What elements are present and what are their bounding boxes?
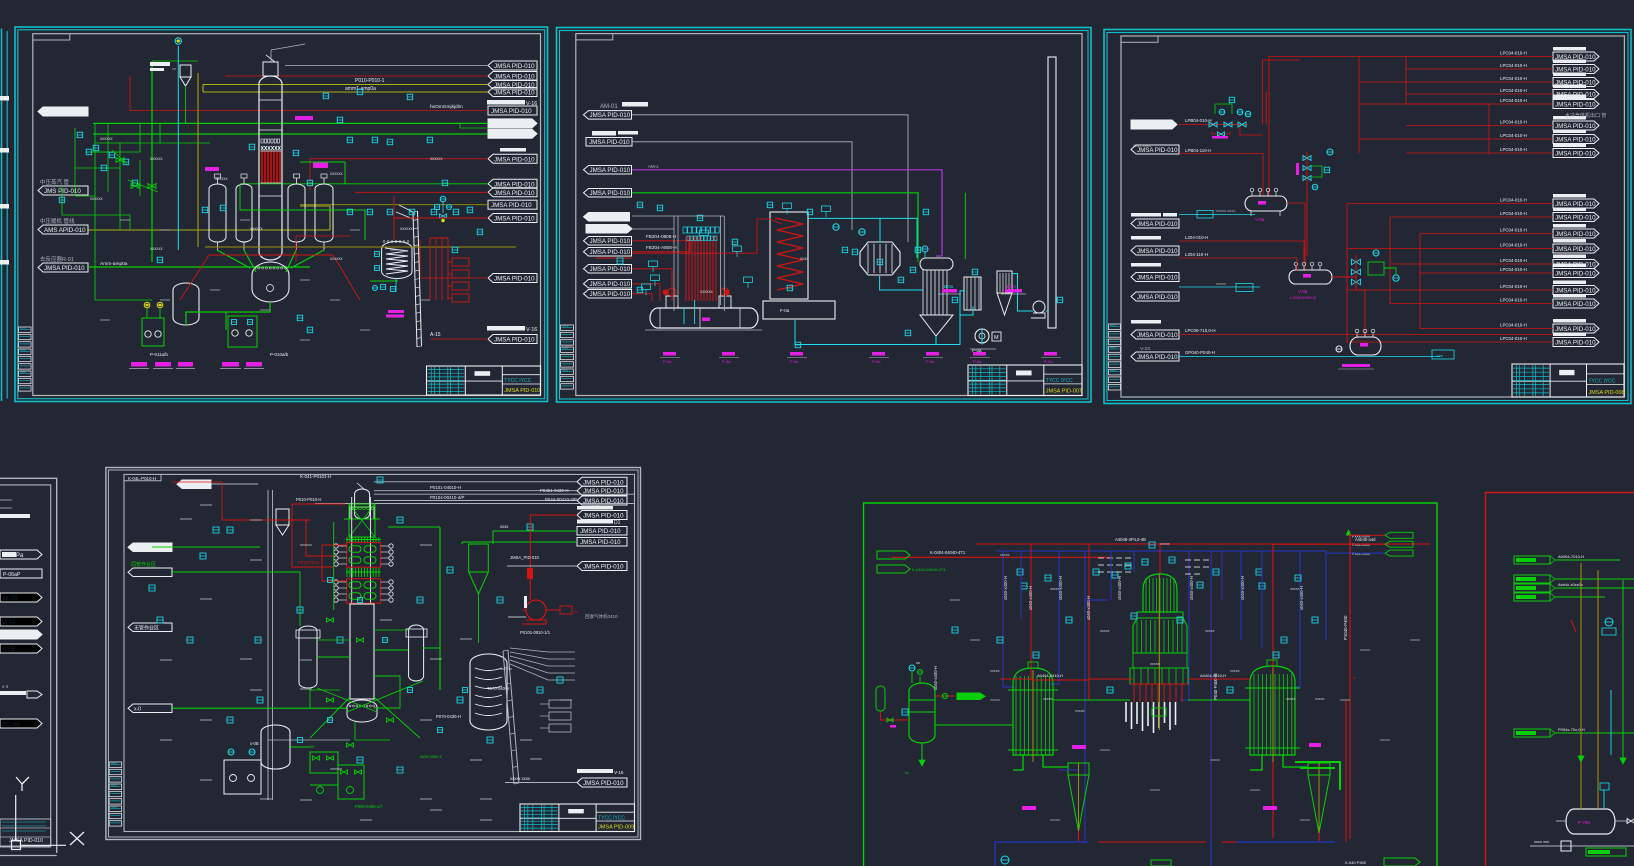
svg-text:xxxxxx: xxxxxx <box>500 666 512 671</box>
svg-text:LPB04-010-H: LPB04-010-H <box>1185 118 1212 123</box>
svg-text:中压蒸汽 管: 中压蒸汽 管 <box>40 178 70 186</box>
svg-text:P044-00410-4/P: P044-00410-4/P <box>545 497 577 502</box>
svg-text:x-4: x-4 <box>2 684 9 689</box>
svg-text:LPC04-010-H: LPC04-010-H <box>1500 63 1527 68</box>
svg-text:JMSA PID-010: JMSA PID-010 <box>1555 288 1596 295</box>
svg-text:JMSA PID-010: JMSA PID-010 <box>1555 102 1596 109</box>
svg-text:x040-x400-H: x040-x400-H <box>1189 576 1194 600</box>
svg-text:xxxxx: xxxxx <box>1230 669 1240 673</box>
svg-text:P070-0430-H: P070-0430-H <box>436 714 461 719</box>
svg-text:P090-0408-1/7: P090-0408-1/7 <box>355 804 383 809</box>
svg-text:xxxxxx: xxxxxx <box>90 196 103 201</box>
svg-text:JMSA PID-010: JMSA PID-010 <box>494 276 535 283</box>
svg-text:JMSA PID-010: JMSA PID-010 <box>1137 221 1178 228</box>
svg-text:V-16: V-16 <box>590 504 600 509</box>
svg-text:JMSA PID-007: JMSA PID-007 <box>1046 389 1082 395</box>
svg-text:BC-0B: BC-0B <box>2 721 20 728</box>
svg-text:JMSA PID-010: JMSA PID-010 <box>580 539 621 546</box>
svg-text:JMSA PID-010: JMSA PID-010 <box>590 238 631 245</box>
svg-text:x040-x400-H: x040-x400-H <box>1003 576 1008 600</box>
svg-text:JMSA PID-010: JMSA PID-010 <box>590 167 631 174</box>
svg-text:LPC04-010-H: LPC04-010-H <box>1500 88 1527 93</box>
svg-text:xxxxx: xxxxx <box>1205 629 1215 633</box>
svg-text:x040-x400-H: x040-x400-H <box>1299 586 1304 610</box>
svg-text:JMSA PID-010: JMSA PID-010 <box>1555 201 1596 208</box>
svg-text:xxxxxx: xxxxxx <box>480 796 492 801</box>
svg-text:P010-P010: P010-P010 <box>298 560 320 565</box>
svg-text:xxxxxx: xxxxxx <box>530 756 542 761</box>
svg-text:xxxxxx: xxxxxx <box>330 256 343 261</box>
svg-text:JMSA PID-010: JMSA PID-010 <box>1137 294 1178 301</box>
svg-text:V-15: V-15 <box>614 770 624 775</box>
svg-text:P-0a: P-0a <box>872 359 881 364</box>
svg-text:xxxxxx: xxxxxx <box>260 796 272 801</box>
svg-text:JMSA PID-010: JMSA PID-010 <box>494 74 535 81</box>
svg-text:P-0a: P-0a <box>663 359 672 364</box>
svg-text:xx: xx <box>574 609 578 614</box>
svg-text:JMSA PID-010: JMSA PID-010 <box>1555 301 1596 308</box>
svg-text:P-760: P-760 <box>1578 820 1591 825</box>
svg-text:xxxxxx: xxxxxx <box>200 596 212 601</box>
svg-text:P-0a: P-0a <box>926 359 935 364</box>
svg-text:JMSA PID-010: JMSA PID-010 <box>590 190 631 197</box>
svg-text:JMSA PID-009: JMSA PID-009 <box>598 825 634 831</box>
svg-text:xxxxxx: xxxxxx <box>100 136 113 141</box>
svg-text:xxxxxx: xxxxxx <box>400 226 413 231</box>
svg-text:xxxxxx: xxxxxx <box>240 656 252 661</box>
svg-text:JMSA PID-010: JMSA PID-010 <box>590 266 631 273</box>
svg-text:A4046-4P4,0-4B: A4046-4P4,0-4B <box>1115 537 1146 542</box>
svg-text:V-0a: V-0a <box>1255 217 1265 222</box>
svg-text:xxxx: xxxx <box>800 256 809 261</box>
svg-text:xxxxxx: xxxxxx <box>430 156 443 161</box>
svg-text:LPC04-010-H: LPC04-010-H <box>1500 120 1527 125</box>
svg-text:JMSA PID-010: JMSA PID-010 <box>1137 354 1178 361</box>
svg-text:去反应器R-01: 去反应器R-01 <box>40 255 74 263</box>
svg-text:xxxxxx: xxxxxx <box>430 656 442 661</box>
svg-text:P-0a: P-0a <box>722 359 731 364</box>
svg-text:JMSA PID-010: JMSA PID-010 <box>1137 248 1178 255</box>
svg-text:AM-x: AM-x <box>648 164 659 169</box>
svg-text:LPC04-010-H: LPC04-010-H <box>1500 76 1527 81</box>
svg-text:xxxxx: xxxxx <box>1315 697 1325 701</box>
svg-text:LPC04-010-H: LPC04-010-H <box>1500 284 1527 289</box>
svg-text:LPC04-010-H: LPC04-010-H <box>1500 133 1527 138</box>
svg-text:JMSA PID-010: JMSA PID-010 <box>1137 275 1178 282</box>
svg-text:TYCC IYCC: TYCC IYCC <box>598 815 625 821</box>
svg-text:中压暖机 管线: 中压暖机 管线 <box>40 217 75 225</box>
svg-text:xxxxx: xxxxx <box>1216 281 1226 286</box>
svg-text:LPC04-010-H: LPC04-010-H <box>1500 298 1527 303</box>
svg-text:P010-P010-H: P010-P010-H <box>296 497 321 502</box>
svg-text:JMS PID-010: JMS PID-010 <box>44 188 81 195</box>
svg-text:JMSA PID-010: JMSA PID-010 <box>1555 271 1596 278</box>
svg-text:K-04L-P010-H: K-04L-P010-H <box>128 476 156 481</box>
svg-text:xxxxx: xxxxx <box>1286 697 1296 701</box>
svg-text:FB204-A808-H: FB204-A808-H <box>646 245 677 250</box>
svg-text:JMSA PID-010: JMSA PID-010 <box>1137 147 1178 154</box>
svg-text:L204-010-H: L204-010-H <box>1185 235 1208 240</box>
svg-text:JMSA PID-010: JMSA PID-010 <box>494 63 535 70</box>
svg-text:xxxx-xxxx-x: xxxx-xxxx-x <box>420 754 443 759</box>
svg-text:xxxxx: xxxxx <box>1150 662 1160 666</box>
svg-text:B-0a: B-0a <box>944 284 954 289</box>
svg-text:JMSA PID-010: JMSA PID-010 <box>590 112 631 119</box>
svg-text:xxxxx: xxxxx <box>1050 587 1060 591</box>
svg-text:A0404-7010-H: A0404-7010-H <box>1558 554 1584 559</box>
svg-text:P010-P010-1: P010-P010-1 <box>355 78 385 84</box>
svg-text:Bb-0: Bb-0 <box>1007 284 1017 289</box>
svg-text:回收气体机0410: 回收气体机0410 <box>585 613 618 620</box>
svg-text:L204-110-H: L204-110-H <box>1185 252 1208 257</box>
svg-text:P-0a: P-0a <box>790 359 799 364</box>
svg-text:xxxxxx: xxxxxx <box>150 246 163 251</box>
svg-text:xxxxx: xxxxx <box>1290 587 1300 591</box>
svg-text:JMSA_PID-010: JMSA_PID-010 <box>510 555 540 560</box>
svg-text:K-040 P400: K-040 P400 <box>1345 860 1367 865</box>
svg-text:JMSA PID-010: JMSA PID-010 <box>583 780 624 787</box>
svg-text:LPC04-010-H: LPC04-010-H <box>1500 211 1527 216</box>
svg-text:A0404-0410-H: A0404-0410-H <box>1037 673 1063 678</box>
svg-text:JMSA PID-010: JMSA PID-010 <box>590 249 631 256</box>
svg-text:P-011a/b: P-011a/b <box>150 352 168 357</box>
svg-text:xxxxxx: xxxxxx <box>215 176 228 181</box>
svg-text:JMSA PID-010: JMSA PID-010 <box>494 216 535 223</box>
svg-text:P-010a/b: P-010a/b <box>270 352 289 357</box>
svg-text:P0101-04010-H: P0101-04010-H <box>430 485 461 490</box>
svg-text:JMSA PID-010: JMSA PID-010 <box>494 156 535 163</box>
svg-text:LXXBSXXIK-B: LXXBSXXIK-B <box>1290 295 1316 300</box>
svg-text:JMSA PID-010: JMSA PID-010 <box>494 190 535 197</box>
svg-text:xxxxx: xxxxx <box>1100 629 1110 633</box>
svg-text:x040-x400-H: x040-x400-H <box>1028 586 1033 610</box>
svg-text:xxxxx: xxxxx <box>1000 553 1010 557</box>
svg-text:Amm-amp0a: Amm-amp0a <box>100 261 128 267</box>
svg-text:A0404-0410-H: A0404-0410-H <box>1200 673 1226 678</box>
svg-text:TYCC IYCC: TYCC IYCC <box>504 378 531 384</box>
svg-text:TYCC IYCC: TYCC IYCC <box>1046 378 1073 384</box>
svg-text:x-0B: x-0B <box>250 741 259 746</box>
svg-text:xxxxxx: xxxxxx <box>330 766 342 771</box>
svg-text:JMSA PID-010: JMSA PID-010 <box>1555 231 1596 238</box>
svg-text:xxxxxx: xxxxxx <box>460 636 472 641</box>
svg-text:P: P <box>1353 676 1356 681</box>
svg-text:K-0404-04040-4T1: K-0404-04040-4T1 <box>930 550 966 555</box>
svg-text:AM-01: AM-01 <box>600 104 618 110</box>
svg-text:P-0a: P-0a <box>1044 359 1053 364</box>
svg-text:x-0: x-0 <box>134 707 141 713</box>
svg-text:x040-x400-H: x040-x400-H <box>1240 576 1245 600</box>
svg-text:JMSA PID-010: JMSA PID-010 <box>1555 246 1596 253</box>
svg-text:TYCC IYCC: TYCC IYCC <box>1589 379 1616 385</box>
svg-text:xxxxx-xxxx: xxxxx-xxxx <box>1216 208 1235 213</box>
svg-text:JMSA PID-010: JMSA PID-010 <box>494 90 535 97</box>
svg-text:xxxxx: xxxxx <box>1075 709 1085 713</box>
svg-text:JMSA PID-010: JMSA PID-010 <box>589 139 630 146</box>
svg-text:X-0B: X-0B <box>2 646 16 653</box>
svg-text:LPC04-010-H: LPC04-010-H <box>1500 267 1527 272</box>
svg-text:JMSA PID-010: JMSA PID-010 <box>580 528 621 535</box>
svg-text:JMSA PID-010: JMSA PID-010 <box>1555 326 1596 333</box>
svg-text:V-0b: V-0b <box>1298 289 1308 294</box>
svg-text:V-16: V-16 <box>526 327 537 333</box>
svg-text:水冷气体机出口 管: 水冷气体机出口 管 <box>1565 112 1606 119</box>
svg-text:xxxxxx: xxxxxx <box>700 289 713 294</box>
svg-text:JMSA PID-010: JMSA PID-010 <box>583 479 624 486</box>
svg-text:JMSA PID-010: JMSA PID-010 <box>1555 137 1596 144</box>
svg-text:LPC04-010-H: LPC04-010-H <box>1500 51 1527 56</box>
svg-text:FB204-0808-H: FB204-0808-H <box>646 234 676 239</box>
svg-text:x040-x400-H: x040-x400-H <box>1117 576 1122 600</box>
svg-text:JMSA PID-010: JMSA PID-010 <box>491 202 532 209</box>
svg-text:AMS APID-010: AMS APID-010 <box>44 227 86 234</box>
svg-text:JMSA PID-010: JMSA PID-010 <box>494 337 535 344</box>
svg-text:LPC04-010-H: LPC04-010-H <box>1500 198 1527 203</box>
svg-text:xxxx: xxxx <box>500 524 509 529</box>
svg-text:LPC04-010-H: LPC04-010-H <box>1500 243 1527 248</box>
svg-text:P-06aP: P-06aP <box>3 572 21 578</box>
svg-text:M: M <box>994 335 999 341</box>
svg-text:P-0a: P-0a <box>973 359 982 364</box>
svg-text:无管作业区: 无管作业区 <box>134 625 159 632</box>
svg-text:xxxxxx: xxxxxx <box>150 156 163 161</box>
svg-text:JMSA PID-010: JMSA PID-010 <box>583 513 624 520</box>
svg-text:LPC04-010-H: LPC04-010-H <box>1500 228 1527 233</box>
svg-text:D1: D1 <box>614 520 621 526</box>
svg-text:T070-040-H: T070-040-H <box>487 686 509 691</box>
svg-text:JMSA PID-010: JMSA PID-010 <box>1555 215 1596 222</box>
svg-text:xx: xx <box>916 661 920 665</box>
svg-text:xxxxx: xxxxx <box>990 669 1000 673</box>
svg-text:A-15: A-15 <box>430 332 441 338</box>
svg-text:JMSA PID-010: JMSA PID-010 <box>1555 340 1596 347</box>
svg-text:xx: xx <box>905 771 909 775</box>
svg-text:xx-2B: xx-2B <box>2 595 18 602</box>
svg-text:LPC04-010-H: LPC04-010-H <box>1500 336 1527 341</box>
svg-text:JMSA PID-010: JMSA PID-010 <box>590 281 631 288</box>
svg-text:xxxxx: xxxxx <box>1160 542 1170 546</box>
svg-text:JMSA PID-010: JMSA PID-010 <box>494 181 535 188</box>
svg-text:LPC04-010-H: LPC04-010-H <box>1500 147 1527 152</box>
svg-text:LPC04-010-H: LPC04-010-H <box>1500 98 1527 103</box>
svg-text:JMSA PID-010: JMSA PID-010 <box>491 108 532 115</box>
svg-text:xxxxx xxxx: xxxxx xxxx <box>510 776 531 781</box>
svg-text:JMSA PID-010: JMSA PID-010 <box>1555 67 1596 74</box>
svg-text:LPB04-110-H: LPB04-110-H <box>1185 148 1211 153</box>
svg-text:JMSA PID-010: JMSA PID-010 <box>44 265 85 272</box>
svg-text:LPC04-010-H: LPC04-010-H <box>1500 323 1527 328</box>
svg-text:JMSA PID-008: JMSA PID-008 <box>1589 390 1625 396</box>
svg-text:xxx: xxx <box>1437 353 1443 358</box>
svg-text:hsOmGmjkjdlm: hsOmGmjkjdlm <box>430 104 463 110</box>
svg-text:xx: xx <box>172 66 176 71</box>
svg-text:K-041-P0101-H: K-041-P0101-H <box>300 474 331 479</box>
svg-text:xxxxx: xxxxx <box>1043 697 1053 701</box>
svg-text:xxxxxx: xxxxxx <box>250 226 263 231</box>
svg-text:xxxxxx: xxxxxx <box>330 171 343 176</box>
svg-text:xxxxxx: xxxxxx <box>180 516 192 521</box>
svg-text:LPC09-710,0-H: LPC09-710,0-H <box>1185 328 1216 333</box>
svg-text:P1040-P400: P1040-P400 <box>1343 615 1348 640</box>
svg-text:V-7A: V-7A <box>2 619 16 626</box>
svg-text:P0451-0430-H: P0451-0430-H <box>540 488 569 493</box>
svg-text:V-2X: V-2X <box>1140 346 1151 352</box>
svg-text:JMSA PID-010: JMSA PID-010 <box>1555 123 1596 130</box>
svg-text:JMSA PID-010: JMSA PID-010 <box>1555 151 1596 158</box>
svg-text:同管作业区: 同管作业区 <box>131 561 156 568</box>
svg-text:JMSA PID-010: JMSA PID-010 <box>1137 332 1178 339</box>
svg-text:P0101-0910-1/1: P0101-0910-1/1 <box>520 630 551 635</box>
svg-text:JMSA PID-010: JMSA PID-010 <box>590 291 631 298</box>
svg-text:xxxx xxx: xxxx xxx <box>1534 839 1549 844</box>
svg-text:Axb4x-x0xx0x: Axb4x-x0xx0x <box>1558 582 1583 587</box>
svg-text:K-0404-04040-4T1: K-0404-04040-4T1 <box>912 567 946 572</box>
svg-text:LPC04-010-H: LPC04-010-H <box>1500 258 1527 263</box>
svg-text:JMSA PID-010: JMSA PID-010 <box>583 564 624 571</box>
svg-text:F-0a: F-0a <box>780 308 790 313</box>
svg-text:xxxxxx: xxxxxx <box>420 796 432 801</box>
svg-text:x040-x400-H: x040-x400-H <box>933 666 938 690</box>
svg-text:P0104-00410-4/P: P0104-00410-4/P <box>430 495 464 500</box>
svg-text:GP040-P040-H: GP040-P040-H <box>1185 350 1215 355</box>
svg-text:JMSA PID-010: JMSA PID-010 <box>504 388 540 394</box>
